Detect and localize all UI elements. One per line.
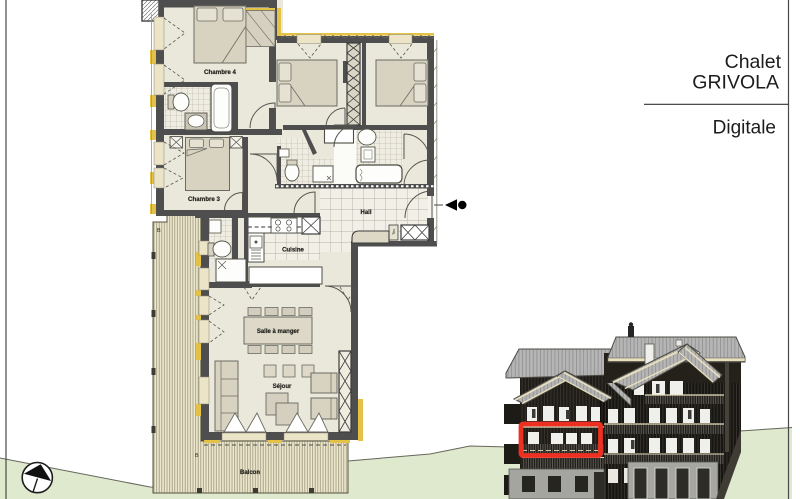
- svg-text:Salle à manger: Salle à manger: [257, 329, 300, 335]
- svg-text:B: B: [195, 453, 199, 459]
- svg-text:Chambre 4: Chambre 4: [204, 69, 237, 76]
- svg-text:Chambre 3: Chambre 3: [188, 196, 221, 203]
- svg-text:Balcon: Balcon: [240, 470, 260, 476]
- svg-text:Hall: Hall: [360, 210, 371, 216]
- svg-text:Digitale: Digitale: [713, 118, 776, 139]
- svg-text:Cuisine: Cuisine: [282, 248, 304, 254]
- svg-text:Chalet: Chalet: [725, 51, 782, 73]
- svg-text:Tec.: Tec.: [391, 228, 396, 235]
- svg-text:B: B: [157, 228, 161, 234]
- svg-text:GRIVOLA: GRIVOLA: [692, 72, 779, 94]
- svg-text:Séjour: Séjour: [273, 384, 292, 390]
